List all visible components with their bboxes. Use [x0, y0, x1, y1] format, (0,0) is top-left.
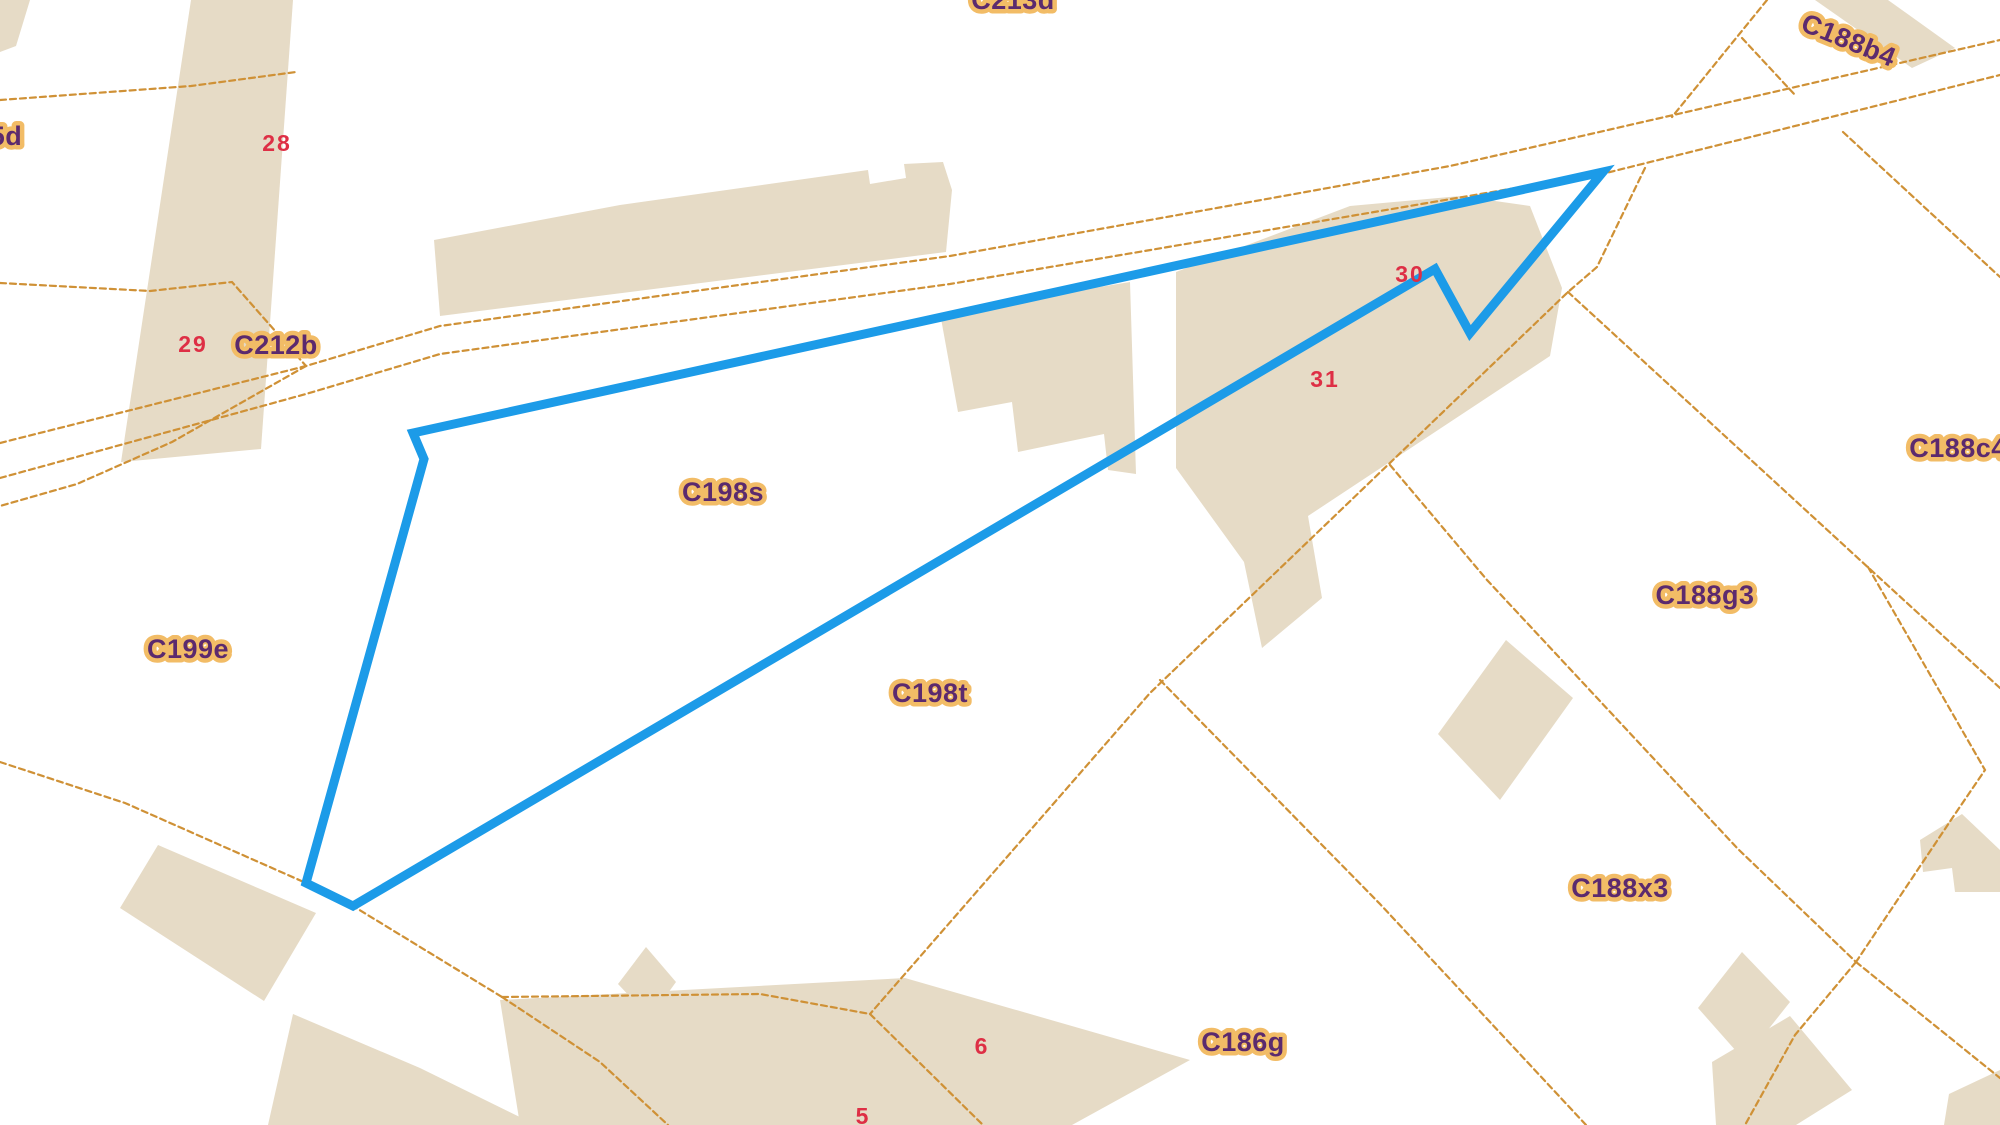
- house-number-n31: 31: [1310, 366, 1340, 392]
- parcel-label-c186g: C186g: [1201, 1027, 1285, 1057]
- house-number-n29: 29: [178, 331, 208, 357]
- parcel-label-c198s: C198s: [682, 477, 764, 507]
- house-number-n5: 5: [856, 1103, 871, 1125]
- parcel-label-c188g3: C188g3: [1655, 580, 1754, 610]
- house-number-n28: 28: [262, 130, 292, 156]
- house-number-n30: 30: [1395, 261, 1425, 287]
- parcel-label-c215d: 5d: [0, 121, 22, 151]
- parcel-label-c188c4: C188c4: [1909, 433, 2000, 463]
- cadastral-map-viewport[interactable]: C213dC188b45d2829C212bC198sC199eC198t303…: [0, 0, 2000, 1125]
- parcel-label-c212b: C212b: [234, 330, 318, 360]
- parcel-label-c213d: C213d: [971, 0, 1055, 15]
- map-background: [0, 0, 2000, 1125]
- cadastral-map-canvas[interactable]: C213dC188b45d2829C212bC198sC199eC198t303…: [0, 0, 2000, 1125]
- house-number-n6: 6: [975, 1033, 990, 1059]
- parcel-label-c198t: C198t: [892, 678, 968, 708]
- parcel-label-c188x3: C188x3: [1571, 873, 1669, 903]
- parcel-label-c199e: C199e: [147, 634, 229, 664]
